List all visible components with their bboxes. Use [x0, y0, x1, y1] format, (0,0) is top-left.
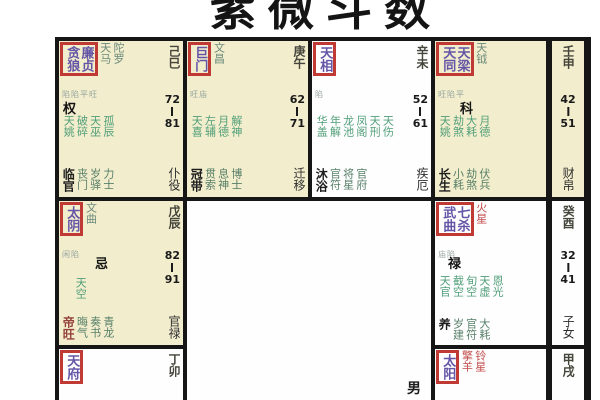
age-range: 42 51 [560, 93, 575, 130]
minor-star: 陀罗 [113, 42, 124, 64]
age-to: 41 [560, 273, 575, 286]
age-to: 71 [290, 117, 305, 130]
age-from: 72 [165, 93, 180, 106]
cell-bottom-row: 临官 丧门 岁驿 力士 [62, 168, 114, 192]
age-from: 62 [290, 93, 305, 106]
year-star: 岁驿 [89, 168, 100, 190]
palace-name: 官禄 [168, 315, 180, 339]
main-star-highlight-box: 天相 [313, 42, 336, 76]
year-star: 贯索 [204, 168, 215, 190]
main-star: 天梁 [455, 46, 468, 72]
minor-star: 龙池 [342, 115, 353, 137]
life-stage: 临官 [62, 168, 74, 192]
age-to: 61 [413, 117, 428, 130]
life-stage: 长生 [438, 168, 450, 192]
year-star: 伏兵 [479, 168, 490, 190]
minor-star: 天刑 [369, 115, 380, 137]
minor-star: 天伤 [382, 115, 393, 137]
minor-star: 凤阁 [356, 115, 367, 137]
palace-name: 迁移 [293, 167, 305, 191]
sihua-marker: 禄 [448, 253, 461, 272]
palace-cell-chen: 太阴 文曲 闲陷 忌 天空 帝旺 晦气 奏书 青龙 戊辰 82 91 官禄 [59, 201, 183, 345]
grid-border-right [584, 37, 591, 400]
main-star: 巨门 [193, 46, 206, 72]
minor-star: 华盖 [316, 115, 327, 137]
minor-star: 月德 [217, 115, 228, 137]
age-range: 72 81 [165, 93, 180, 130]
main-star: 贪狼 [65, 46, 78, 72]
year-star: 官符 [329, 168, 340, 190]
palace-cell-wei: 天相 陷 华盖 年解 龙池 凤阁 天刑 天伤 沐浴 官符 将星 官府 辛未 52… [312, 41, 431, 197]
minor-star: 左辅 [204, 115, 215, 137]
palace-cell-shen: 天同 天梁 天钺 旺陷平 科 天姚 劫煞 大耗 月德 长生 小耗 劫煞 伏兵 [435, 41, 546, 197]
age-from: 32 [560, 249, 575, 262]
year-star: 青龙 [103, 316, 114, 338]
age-to: 81 [165, 117, 180, 130]
brightness-note: 旺庙 [190, 89, 208, 100]
minor-star: 旬空 [465, 275, 476, 297]
stem-branch: 辛未 [416, 45, 428, 69]
life-stage: 养 [438, 318, 450, 330]
year-star: 劫煞 [465, 168, 476, 190]
main-star: 太阴 [65, 206, 78, 232]
main-star-highlight-box: 武曲 七杀 [436, 202, 474, 236]
palace-name: 仆役 [168, 167, 180, 191]
life-stage: 沐浴 [315, 168, 327, 192]
minor-star-group: 天空 [75, 277, 86, 299]
stem-branch: 癸酉 [562, 205, 574, 229]
cell-bottom-row: 养 岁建 官符 大耗 [438, 318, 490, 340]
ziwei-doushu-chart: 紫微斗数 贪狼 廉贞 天马 陀罗 陷陷平旺 权 天姚 破碎 天巫 孤辰 临官 丧… [0, 0, 600, 400]
minor-star: 解神 [231, 115, 242, 137]
stem-branch: 壬申 [562, 45, 574, 69]
cell-bottom-row: 长生 小耗 劫煞 伏兵 [438, 168, 490, 192]
year-star: 力士 [103, 168, 114, 190]
palace-cell-wu: 巨门 文昌 旺庙 天喜 左辅 月德 解神 冠带 贯索 息神 博士 庚午 62 7… [187, 41, 308, 197]
cell-bottom-row: 帝旺 晦气 奏书 青龙 [62, 316, 114, 340]
stem-branch: 甲戌 [562, 353, 574, 377]
minor-star: 月德 [479, 115, 490, 137]
age-to: 91 [165, 273, 180, 286]
year-star: 将星 [342, 168, 353, 190]
stem-branch: 庚午 [293, 45, 305, 69]
minor-star: 天钺 [476, 42, 487, 64]
minor-star: 天巫 [89, 115, 100, 137]
age-range: 32 41 [560, 249, 575, 286]
minor-star: 天姚 [439, 115, 450, 137]
main-star: 天府 [65, 354, 78, 380]
minor-star-group: 天姚 劫煞 大耗 月德 [439, 115, 490, 137]
cell-bottom-row: 沐浴 官符 将星 官府 [315, 168, 367, 192]
minor-star: 年解 [329, 115, 340, 137]
main-star-highlight-box: 太阳 [436, 350, 459, 384]
minor-star: 天喜 [191, 115, 202, 137]
main-star-highlight-box: 太阴 [60, 202, 83, 236]
minor-star: 劫煞 [452, 115, 463, 137]
page-title-text: 紫微斗数 [210, 0, 490, 33]
minor-star: 火星 [476, 202, 487, 224]
main-star: 太阳 [441, 354, 454, 380]
minor-star: 天虚 [479, 275, 490, 297]
year-star: 晦气 [76, 316, 87, 338]
minor-star: 天马 [100, 42, 111, 64]
stem-branch: 戊辰 [168, 205, 180, 229]
gender-label: 男 [407, 378, 421, 398]
main-star-highlight-box: 天同 天梁 [436, 42, 474, 76]
minor-star-group: 天喜 左辅 月德 解神 [191, 115, 242, 137]
minor-star: 大耗 [465, 115, 476, 137]
year-star: 丧门 [76, 168, 87, 190]
main-star: 天相 [318, 46, 331, 72]
age-from: 52 [413, 93, 428, 106]
age-range: 62 71 [290, 93, 305, 130]
age-to: 51 [560, 117, 575, 130]
year-star: 息神 [217, 168, 228, 190]
palace-cell-xu: 太阳 擎羊 铃星 [435, 349, 546, 400]
year-star: 大耗 [479, 318, 490, 340]
minor-star: 文曲 [85, 202, 96, 224]
brightness-note: 闲陷 [62, 249, 80, 260]
life-stage: 冠带 [190, 168, 202, 192]
age-range-bar [419, 107, 421, 116]
sihua-marker: 忌 [95, 253, 108, 272]
palace-name: 财帛 [562, 167, 574, 191]
minor-star: 天姚 [63, 115, 74, 137]
year-star: 奏书 [89, 316, 100, 338]
minor-star-group: 天官 截空 旬空 天虚 恩光 [439, 275, 503, 297]
stem-branch: 丁卯 [168, 353, 180, 377]
year-star: 小耗 [452, 168, 463, 190]
minor-star: 铃星 [474, 350, 485, 372]
palace-name: 子女 [562, 315, 574, 339]
age-range-bar [171, 107, 173, 116]
age-range-bar [171, 263, 173, 272]
age-range-bar [296, 107, 298, 116]
age-from: 42 [560, 93, 575, 106]
minor-star: 破碎 [76, 115, 87, 137]
age-from: 82 [165, 249, 180, 262]
brightness-note: 陷 [315, 89, 324, 100]
main-star: 七杀 [455, 206, 468, 232]
palace-cell-shen-label-strip: 壬申 42 51 财帛 [552, 41, 584, 197]
chart-center-area [187, 201, 431, 400]
palace-cell-si: 贪狼 廉贞 天马 陀罗 陷陷平旺 权 天姚 破碎 天巫 孤辰 临官 丧门 岁驿 … [59, 41, 183, 197]
minor-star: 孤辰 [103, 115, 114, 137]
age-range: 82 91 [165, 249, 180, 286]
minor-star: 擎羊 [461, 350, 472, 372]
year-star: 岁建 [452, 318, 463, 340]
palace-cell-mao: 天府 丁卯 [59, 349, 183, 400]
main-star-highlight-box: 巨门 [188, 42, 211, 76]
minor-star: 天官 [439, 275, 450, 297]
main-star: 廉贞 [79, 46, 92, 72]
minor-star-group: 天姚 破碎 天巫 孤辰 [63, 115, 114, 137]
palace-cell-you-label-strip: 癸酉 32 41 子女 [552, 201, 584, 345]
palace-name: 疾厄 [416, 167, 428, 191]
year-star: 官府 [356, 168, 367, 190]
page-title: 紫微斗数 [210, 0, 490, 33]
year-star: 官符 [465, 318, 476, 340]
main-star: 天同 [441, 46, 454, 72]
palace-cell-xu-label-strip: 甲戌 [552, 349, 584, 400]
main-star-highlight-box: 贪狼 廉贞 [60, 42, 98, 76]
minor-star: 截空 [452, 275, 463, 297]
minor-star: 天空 [75, 277, 86, 299]
cell-bottom-row: 冠带 贯索 息神 博士 [190, 168, 242, 192]
stem-branch: 己巳 [168, 45, 180, 69]
minor-star-group: 华盖 年解 龙池 凤阁 天刑 天伤 [316, 115, 393, 137]
main-star: 武曲 [441, 206, 454, 232]
main-star-highlight-box: 天府 [60, 350, 83, 384]
age-range: 52 61 [413, 93, 428, 130]
age-range-bar [567, 263, 569, 272]
year-star: 博士 [231, 168, 242, 190]
minor-star: 文昌 [213, 42, 224, 64]
palace-cell-you: 武曲 七杀 火星 庙陷 禄 天官 截空 旬空 天虚 恩光 养 岁建 官符 大耗 [435, 201, 546, 345]
life-stage: 帝旺 [62, 316, 74, 340]
minor-star: 恩光 [492, 275, 503, 297]
age-range-bar [567, 107, 569, 116]
